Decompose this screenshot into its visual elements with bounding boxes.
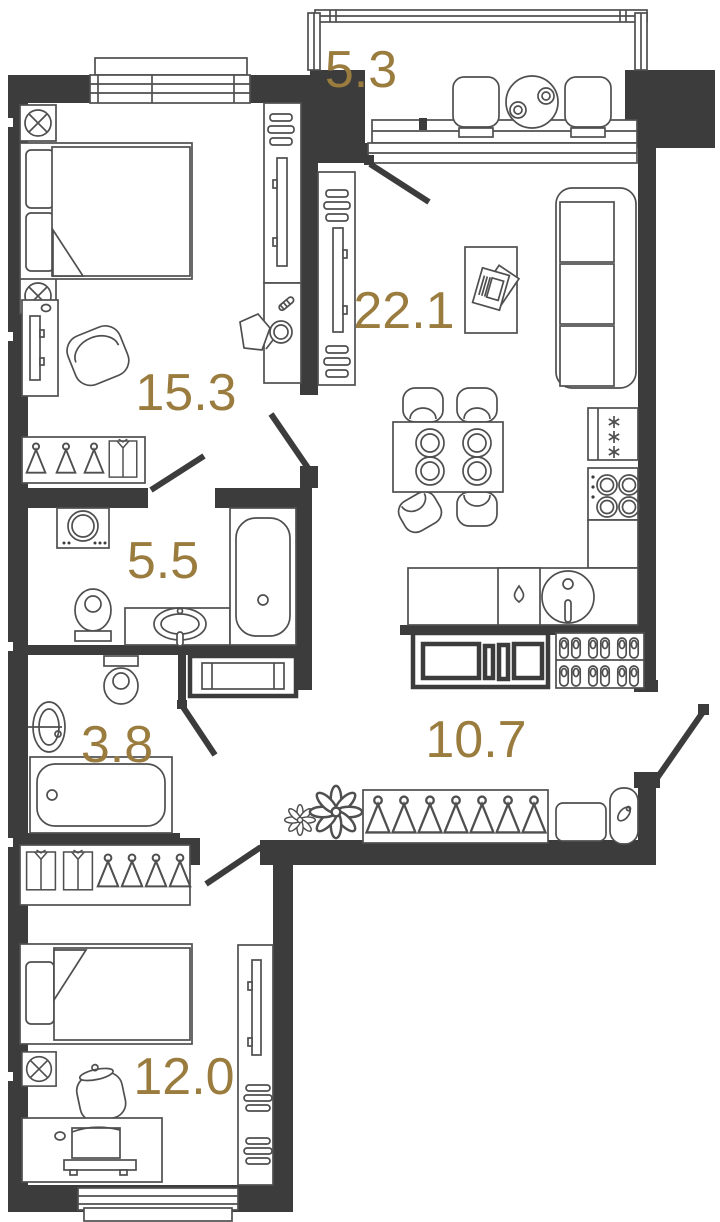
desk-icon	[22, 300, 58, 396]
bedroom1-window-icon	[90, 58, 250, 103]
hallway-wardrobe-icon	[363, 790, 548, 843]
radiator-bench-icon	[190, 656, 296, 696]
entrance-door-swing	[655, 712, 703, 781]
toilet-icon-2	[104, 656, 138, 704]
nightstand-lamp-icon-3	[22, 1052, 56, 1086]
desk-icon-2	[22, 1118, 162, 1182]
nightstand-lamp-icon	[20, 105, 56, 141]
bathroom-door-swing	[151, 456, 204, 490]
toilet-door-swing	[183, 707, 215, 755]
hallway-cabinet-icon	[413, 633, 548, 687]
stove-icon	[588, 468, 639, 520]
room-label-bedroom-1: 15.3	[135, 364, 236, 422]
kitchen-sink-icon	[542, 571, 594, 623]
fridge-icon	[588, 408, 638, 460]
bedroom1-door-swing	[271, 414, 308, 468]
bench-icon	[556, 803, 606, 841]
room-label-toilet: 3.8	[81, 716, 153, 774]
room-label-bathroom: 5.5	[127, 532, 199, 590]
shoe-cabinet-icon	[556, 633, 644, 688]
room-label-bedroom-2: 12.0	[133, 1048, 234, 1106]
dishwasher-icon	[498, 568, 540, 625]
tv-unit-living-icon	[318, 172, 355, 385]
dressing-table-icon	[264, 283, 301, 383]
room-label-hallway: 10.7	[425, 711, 526, 769]
pouf-chair-icon	[72, 1060, 129, 1124]
sofa-icon	[556, 188, 636, 388]
balcony-chair-icon-2	[565, 77, 611, 137]
pouf-icon	[610, 788, 638, 844]
floor-plan-svg: 5.3 22.1 15.3 5.5 3.8 10.7 12.0	[0, 0, 720, 1222]
bedroom2-door-swing	[206, 847, 261, 884]
single-bed-icon	[20, 944, 192, 1044]
balcony-door-swing	[370, 164, 429, 202]
balcony-chair-icon	[453, 77, 499, 137]
washing-machine-icon	[57, 508, 109, 548]
toilet-icon	[75, 589, 111, 641]
tv-unit-icon-2	[238, 945, 273, 1185]
bathtub-icon	[230, 508, 296, 645]
room-label-living-kitchen: 22.1	[353, 282, 454, 340]
room-label-balcony: 5.3	[325, 41, 397, 99]
balcony-table-icon	[506, 76, 558, 128]
bathroom-sink-icon	[125, 608, 230, 646]
floor-plan-page: 5.3 22.1 15.3 5.5 3.8 10.7 12.0	[0, 0, 720, 1222]
double-bed-icon	[20, 143, 192, 279]
armchair-icon	[62, 321, 133, 390]
tv-unit-icon	[264, 103, 301, 283]
wardrobe-icon-2	[20, 845, 190, 905]
corner-sink-icon	[28, 702, 65, 752]
wardrobe-icon	[22, 437, 145, 483]
bedroom2-window-icon	[78, 1188, 238, 1221]
dining-table-icon	[393, 388, 503, 537]
plant-icon-large	[310, 786, 362, 838]
